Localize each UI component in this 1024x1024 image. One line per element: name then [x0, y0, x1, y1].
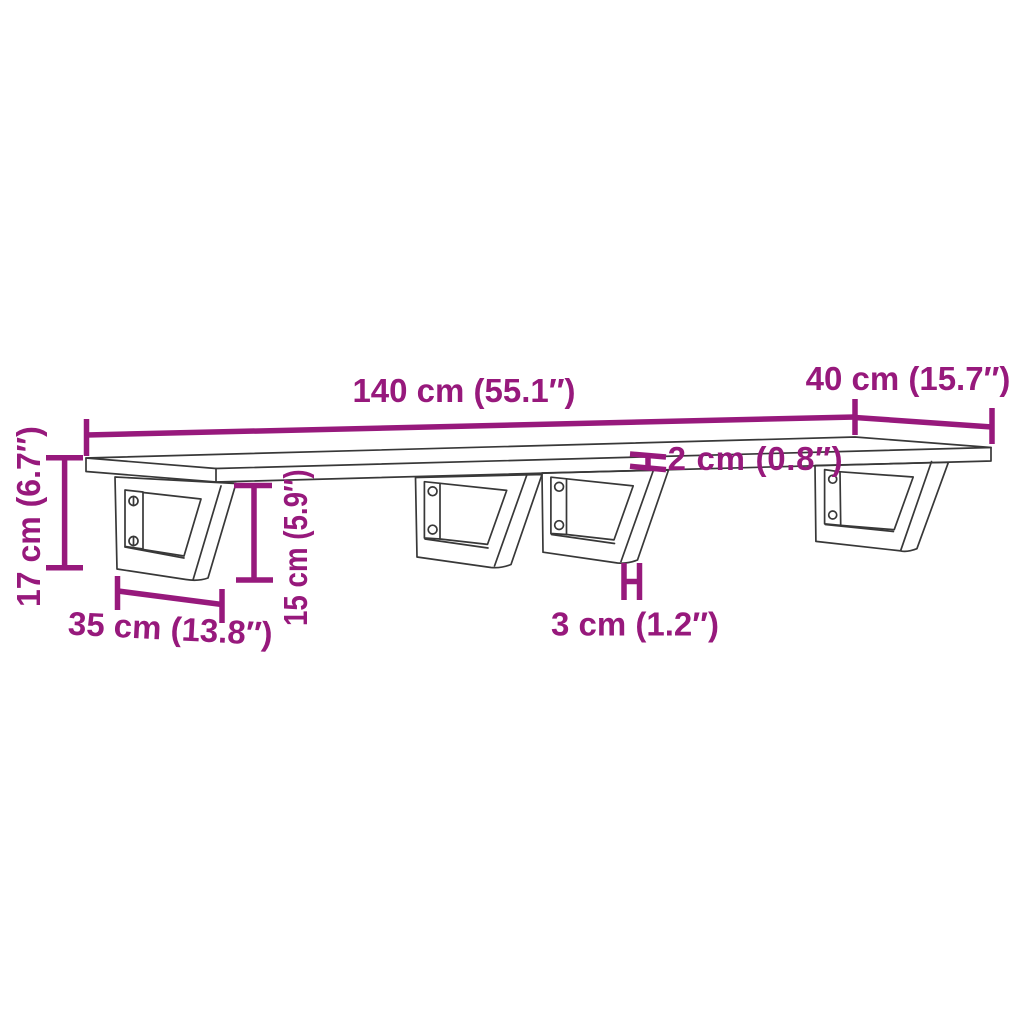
svg-text:17 cm (6.7″): 17 cm (6.7″) [11, 426, 48, 607]
svg-text:140 cm (55.1″): 140 cm (55.1″) [352, 372, 575, 409]
svg-text:2 cm (0.8″): 2 cm (0.8″) [668, 440, 844, 477]
svg-text:15 cm (5.9″): 15 cm (5.9″) [278, 469, 315, 626]
svg-text:40 cm (15.7″): 40 cm (15.7″) [806, 360, 1011, 397]
svg-text:3 cm (1.2″): 3 cm (1.2″) [551, 606, 719, 643]
